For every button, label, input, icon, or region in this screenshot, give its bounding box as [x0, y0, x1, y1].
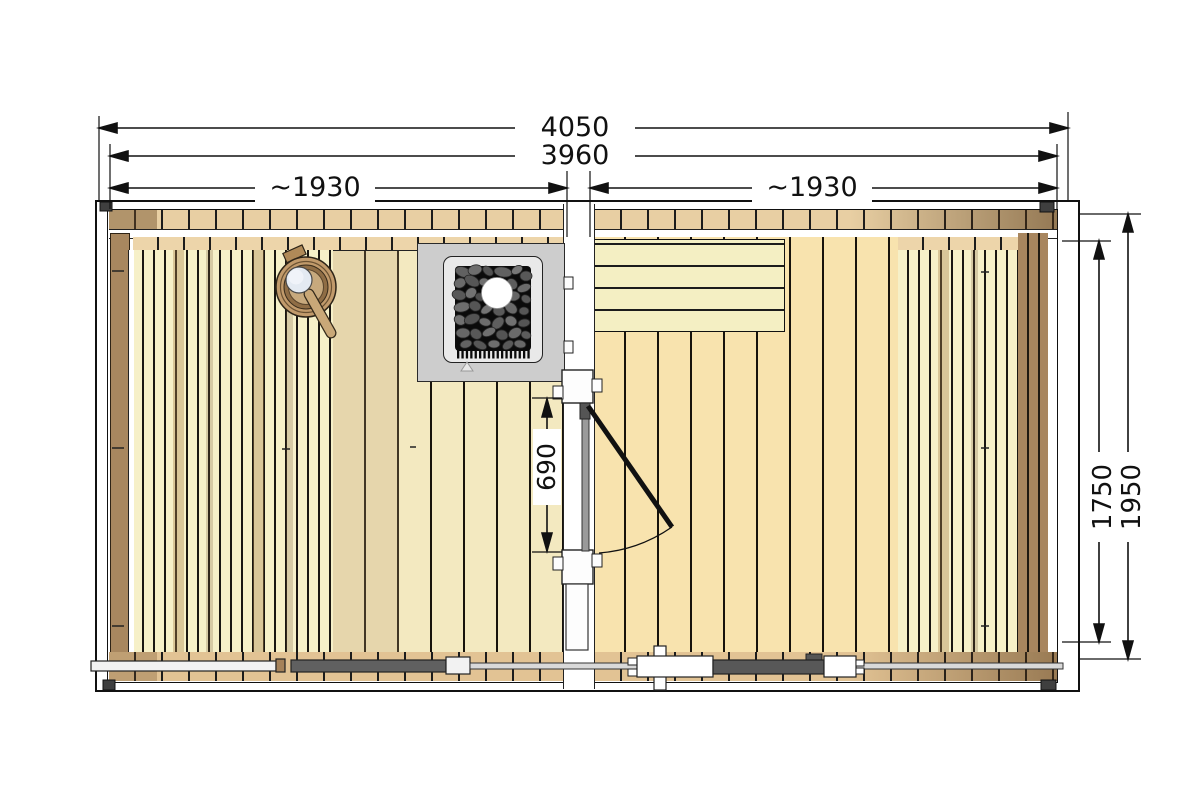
- dim-label-inner-depth: 1750: [1088, 452, 1118, 542]
- dim-label-right-section: ~1930: [752, 173, 872, 203]
- dim-label-left-section: ~1930: [255, 173, 375, 203]
- dim-label-outer-depth: 1950: [1117, 452, 1147, 542]
- bottom-wall-shade-right: [850, 652, 1057, 681]
- top-wall-planks-row2-right: [898, 237, 1018, 250]
- left-wall-board: [110, 233, 130, 654]
- partition-wall: [563, 204, 595, 689]
- dim-label-door-opening: 690: [533, 429, 561, 505]
- right-slatted-bench: [898, 250, 1018, 652]
- dim-label-frame-width: 3960: [515, 141, 635, 171]
- top-wall-shade-right: [850, 210, 1057, 229]
- front-plank-bench: [593, 239, 785, 332]
- left-bench-edge: [128, 250, 134, 652]
- floor-plan-canvas: 4050 3960 ~1930 ~1930 1750 1950 690: [0, 0, 1200, 800]
- top-wall-shade-left: [109, 210, 157, 229]
- right-wall-boards: [1018, 233, 1048, 652]
- left-slatted-bench: [133, 250, 333, 652]
- sauna-heater-panel: [443, 256, 543, 363]
- bottom-wall-shade-left: [109, 652, 157, 681]
- dim-label-overall-width: 4050: [515, 113, 635, 143]
- sauna-room-floor-tint: [333, 240, 399, 655]
